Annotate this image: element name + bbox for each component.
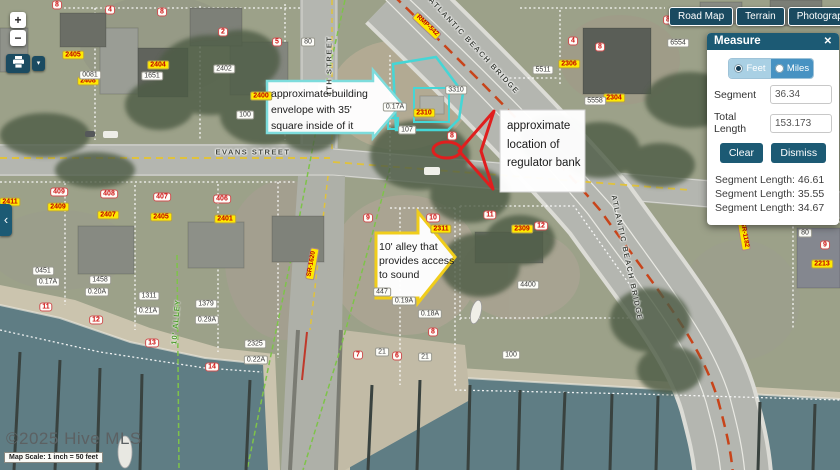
map-label: 2 bbox=[218, 28, 228, 37]
map-label: 2407 bbox=[97, 211, 119, 220]
unit-feet-option[interactable]: Feet bbox=[729, 59, 771, 78]
map-label: 100 bbox=[236, 111, 254, 120]
close-icon[interactable]: ✕ bbox=[824, 33, 832, 50]
unit-miles-option[interactable]: Miles bbox=[771, 59, 813, 78]
map-label: 0.18A bbox=[418, 310, 442, 319]
road-map-button[interactable]: Road Map bbox=[669, 7, 733, 26]
map-label: 2306 bbox=[558, 60, 580, 69]
total-length-input[interactable] bbox=[770, 114, 832, 133]
sidebar-collapse-button[interactable]: ‹ bbox=[0, 204, 12, 236]
map-label: 0451 bbox=[32, 267, 54, 276]
clear-button[interactable]: Clear bbox=[720, 143, 763, 163]
map-label: 9 bbox=[820, 241, 830, 250]
map-label: 6 bbox=[392, 352, 402, 361]
dismiss-button[interactable]: Dismiss bbox=[771, 143, 826, 163]
map-label: 0.17A bbox=[383, 103, 407, 112]
copyright-text: ©2025 Hive MLS bbox=[6, 429, 142, 449]
callout-regulator-bank-text: approximate location of regulator bank bbox=[507, 117, 581, 173]
map-label: 0.20A bbox=[85, 288, 109, 297]
printer-icon bbox=[12, 56, 25, 68]
map-label: 407 bbox=[153, 193, 171, 202]
map-label: 107 bbox=[398, 126, 416, 135]
measure-panel: Measure ✕ Feet Miles Segment Total Lengt… bbox=[707, 33, 839, 225]
map-label: 8 bbox=[595, 43, 605, 52]
map-label: 0.17A bbox=[36, 278, 60, 287]
map-label: 2400 bbox=[250, 92, 272, 101]
map-label: 11 bbox=[39, 303, 52, 312]
plus-icon: + bbox=[14, 13, 21, 27]
segment-length-item: Segment Length: 46.61 bbox=[715, 173, 831, 187]
photography-button[interactable]: Photography bbox=[788, 7, 840, 26]
map-label: 5511 bbox=[532, 66, 553, 75]
map-label: 2310 bbox=[413, 109, 435, 118]
map-label: 2325 bbox=[244, 340, 266, 349]
map-label: 406 bbox=[213, 195, 231, 204]
zoom-in-button[interactable]: + bbox=[10, 12, 26, 28]
map-label: 21 bbox=[418, 353, 432, 362]
map-label: 2401 bbox=[214, 215, 236, 224]
map-label: 4400 bbox=[517, 281, 539, 290]
callout-building-envelope-text: approximate building envelope with 35' s… bbox=[271, 86, 375, 134]
map-label: 408 bbox=[100, 190, 118, 199]
map-label: 0.22A bbox=[244, 356, 268, 365]
map-label: EVANS STREET bbox=[216, 148, 291, 156]
map-label: 2404 bbox=[147, 61, 169, 70]
map-label: 11 bbox=[483, 211, 496, 220]
map-label: 409 bbox=[50, 188, 68, 197]
radio-selected-icon bbox=[734, 64, 743, 73]
callout-alley-text: 10' alley that provides access to sound bbox=[379, 240, 457, 282]
map-label: 13 bbox=[145, 339, 159, 348]
unit-toggle: Feet Miles bbox=[729, 59, 813, 78]
segment-input[interactable] bbox=[770, 85, 832, 104]
map-label: 1311 bbox=[138, 292, 159, 301]
total-length-label: Total Length bbox=[714, 111, 770, 135]
zoom-out-button[interactable]: − bbox=[10, 30, 26, 46]
map-label: 2409 bbox=[47, 203, 69, 212]
unit-feet-label: Feet bbox=[746, 63, 765, 74]
map-label: 5 bbox=[272, 38, 282, 47]
map-label: 0.29A bbox=[195, 316, 219, 325]
map-label: 80 bbox=[301, 38, 315, 47]
map-label: 3310 bbox=[445, 86, 467, 95]
map-label: 2311 bbox=[430, 225, 451, 234]
map-label: 0.19A bbox=[392, 297, 416, 306]
measure-panel-header: Measure ✕ bbox=[707, 33, 839, 50]
minus-icon: − bbox=[14, 31, 21, 45]
caret-down-icon: ▾ bbox=[37, 60, 41, 67]
segment-length-item: Segment Length: 34.67 bbox=[715, 201, 831, 215]
segment-length-list: Segment Length: 46.61 Segment Length: 35… bbox=[715, 173, 831, 216]
map-label: 6554 bbox=[667, 39, 689, 48]
map-label: 447 bbox=[373, 288, 391, 297]
map-label: 100 bbox=[502, 351, 520, 360]
collapse-chevron-icon: ‹ bbox=[4, 212, 8, 227]
map-label: 0081 bbox=[79, 71, 101, 80]
map-label: 5558 bbox=[584, 97, 606, 106]
total-length-row: Total Length bbox=[714, 111, 832, 135]
map-type-bar: Road Map Terrain Photography ▾ bbox=[669, 7, 840, 26]
segment-length-item: Segment Length: 35.55 bbox=[715, 187, 831, 201]
map-label: 8 bbox=[52, 1, 62, 10]
map-label: 8 bbox=[447, 132, 457, 141]
map-label: 2402 bbox=[213, 65, 235, 74]
map-label: 8 bbox=[428, 328, 438, 337]
map-label: 1651 bbox=[141, 72, 163, 81]
terrain-button[interactable]: Terrain bbox=[736, 7, 785, 26]
map-label: 4 bbox=[568, 37, 578, 46]
segment-label: Segment bbox=[714, 89, 756, 101]
segment-row: Segment bbox=[714, 85, 832, 104]
measure-panel-title: Measure bbox=[714, 33, 761, 50]
map-label: 14 bbox=[205, 363, 219, 372]
radio-unselected-icon bbox=[775, 64, 784, 73]
map-label: 12 bbox=[534, 222, 548, 231]
map-label: 21 bbox=[375, 348, 389, 357]
map-label: 7 bbox=[353, 351, 363, 360]
print-button[interactable] bbox=[6, 54, 30, 73]
map-scale-text: Map Scale: 1 inch = 50 feet bbox=[4, 452, 103, 463]
map-label: 80 bbox=[798, 229, 812, 238]
map-label: 2405 bbox=[62, 51, 84, 60]
unit-miles-label: Miles bbox=[787, 63, 809, 74]
measure-buttons: Clear Dismiss bbox=[707, 143, 839, 163]
map-label: 1379 bbox=[195, 300, 217, 309]
map-label: 12 bbox=[89, 316, 103, 325]
map-label: 4 bbox=[105, 6, 115, 15]
map-label: 2309 bbox=[511, 225, 533, 234]
map-label: 2213 bbox=[811, 260, 833, 269]
map-label: 0.21A bbox=[136, 307, 160, 316]
print-options-caret-button[interactable]: ▾ bbox=[32, 56, 45, 71]
map-label: 1458 bbox=[89, 276, 111, 285]
map-label: 2304 bbox=[603, 94, 625, 103]
map-label: 9 bbox=[363, 214, 373, 223]
map-label: 10 bbox=[426, 214, 440, 223]
map-label: 8 bbox=[157, 8, 167, 17]
map-label: 2405 bbox=[150, 213, 172, 222]
